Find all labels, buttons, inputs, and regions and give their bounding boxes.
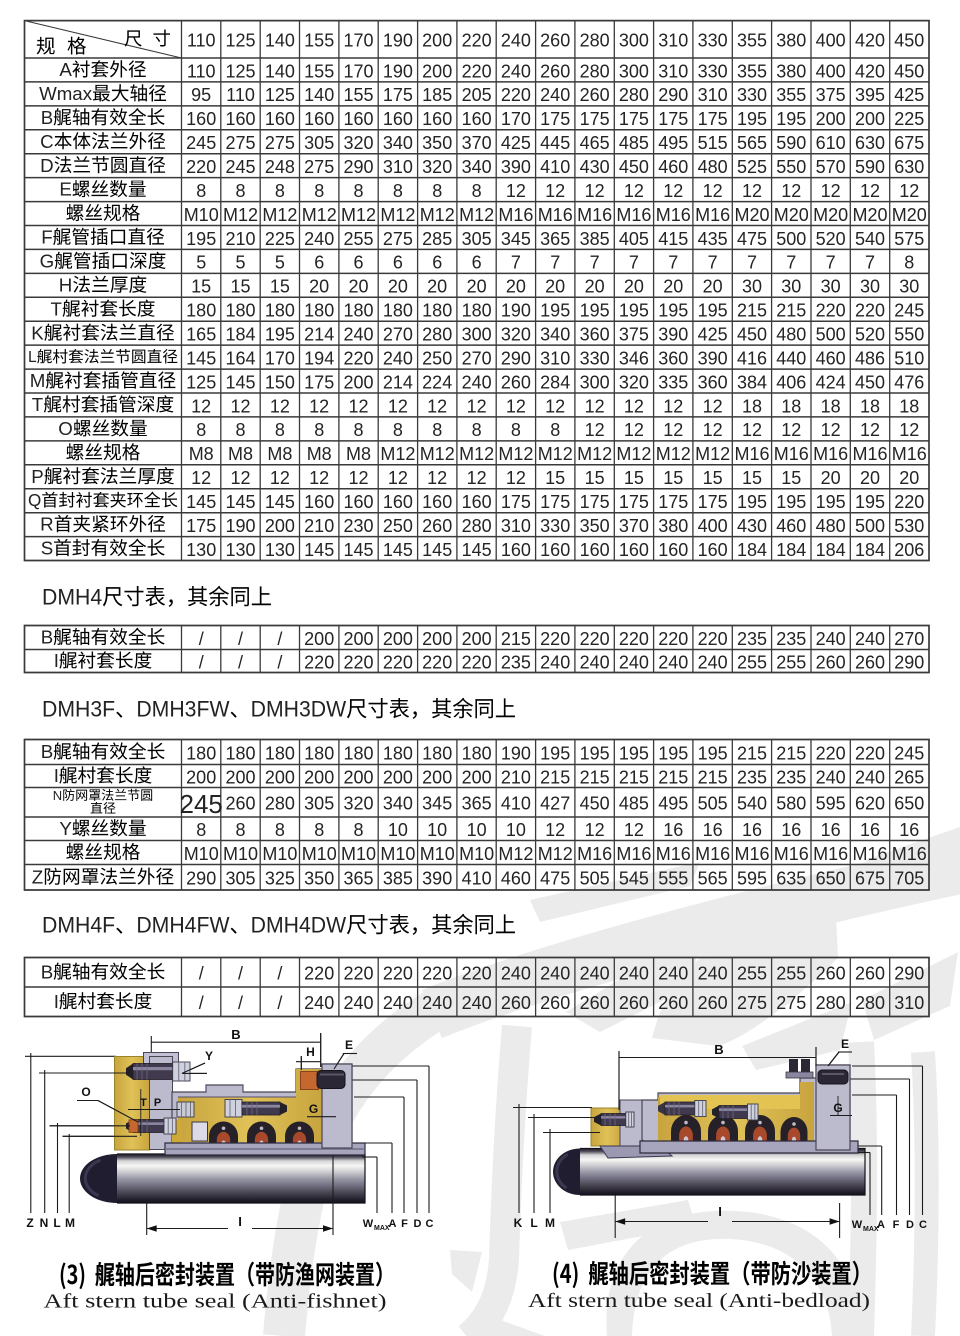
svg-text:610: 610	[816, 133, 846, 153]
svg-text:410: 410	[540, 157, 570, 177]
svg-text:310: 310	[894, 993, 924, 1013]
svg-text:215: 215	[540, 767, 570, 787]
svg-text:M12: M12	[695, 444, 730, 464]
svg-text:270: 270	[462, 348, 492, 368]
svg-text:Aft stern tube seal (Anti-bedl: Aft stern tube seal (Anti-bedload)	[528, 1290, 870, 1312]
svg-text:460: 460	[501, 869, 531, 889]
svg-text:200: 200	[265, 767, 295, 787]
svg-text:8: 8	[550, 420, 560, 440]
svg-text:206: 206	[894, 540, 924, 560]
svg-text:15: 15	[781, 468, 801, 488]
svg-text:415: 415	[658, 229, 688, 249]
svg-text:Q: Q	[28, 491, 41, 510]
svg-text:160: 160	[383, 492, 413, 512]
svg-text:M12: M12	[498, 844, 533, 864]
svg-text:310: 310	[383, 157, 413, 177]
svg-text:8: 8	[353, 420, 363, 440]
svg-text:310: 310	[501, 516, 531, 536]
svg-text:M: M	[545, 1216, 555, 1230]
svg-text:260: 260	[619, 993, 649, 1013]
svg-text:330: 330	[737, 85, 767, 105]
svg-text:505: 505	[580, 869, 610, 889]
svg-text:200: 200	[816, 109, 846, 129]
svg-text:K: K	[31, 322, 44, 343]
svg-text:12: 12	[585, 820, 605, 840]
svg-text:160: 160	[540, 540, 570, 560]
svg-text:355: 355	[737, 31, 767, 51]
svg-text:10: 10	[467, 820, 487, 840]
svg-text:630: 630	[894, 157, 924, 177]
svg-text:180: 180	[383, 301, 413, 321]
svg-text:12: 12	[624, 820, 644, 840]
svg-text:12: 12	[821, 420, 841, 440]
svg-text:225: 225	[265, 229, 295, 249]
svg-text:275: 275	[383, 229, 413, 249]
svg-text:375: 375	[619, 325, 649, 345]
svg-text:M8: M8	[307, 444, 332, 464]
svg-text:260: 260	[580, 85, 610, 105]
svg-text:350: 350	[422, 133, 452, 153]
svg-text:275: 275	[225, 133, 255, 153]
svg-text:460: 460	[776, 516, 806, 536]
svg-text:175: 175	[580, 109, 610, 129]
svg-text:P: P	[154, 1097, 161, 1109]
svg-text:140: 140	[304, 85, 334, 105]
svg-text:W: W	[363, 1218, 374, 1230]
svg-text:330: 330	[698, 61, 728, 81]
svg-text:M16: M16	[774, 444, 809, 464]
svg-text:590: 590	[855, 157, 885, 177]
svg-text:12: 12	[230, 468, 250, 488]
svg-text:248: 248	[265, 157, 295, 177]
svg-text:395: 395	[855, 85, 885, 105]
svg-text:630: 630	[855, 133, 885, 153]
svg-text:Z: Z	[32, 866, 43, 887]
svg-text:440: 440	[776, 348, 806, 368]
svg-text:G: G	[40, 251, 55, 272]
svg-text:20: 20	[348, 277, 368, 297]
svg-text:180: 180	[462, 301, 492, 321]
svg-text:145: 145	[225, 492, 255, 512]
svg-text:B: B	[41, 107, 53, 128]
svg-text:12: 12	[703, 420, 723, 440]
svg-text:M16: M16	[774, 844, 809, 864]
svg-text:M16: M16	[734, 844, 769, 864]
svg-text:7: 7	[511, 253, 521, 273]
svg-text:M16: M16	[656, 205, 691, 225]
svg-text:160: 160	[619, 540, 649, 560]
svg-text:M16: M16	[813, 444, 848, 464]
svg-text:190: 190	[383, 61, 413, 81]
svg-text:175: 175	[698, 492, 728, 512]
svg-text:335: 335	[658, 372, 688, 392]
svg-text:220: 220	[462, 652, 492, 672]
svg-text:475: 475	[540, 869, 570, 889]
svg-text:F: F	[893, 1219, 900, 1231]
svg-text:485: 485	[619, 794, 649, 814]
svg-text:340: 340	[383, 133, 413, 153]
svg-text:565: 565	[737, 133, 767, 153]
svg-text:M10: M10	[380, 844, 415, 864]
svg-text:180: 180	[225, 743, 255, 763]
svg-text:12: 12	[309, 396, 329, 416]
svg-text:365: 365	[462, 794, 492, 814]
svg-text:305: 305	[462, 229, 492, 249]
svg-text:390: 390	[658, 325, 688, 345]
svg-text:260: 260	[540, 61, 570, 81]
svg-text:350: 350	[580, 516, 610, 536]
svg-text:280: 280	[619, 85, 649, 105]
svg-text:160: 160	[501, 540, 531, 560]
svg-text:330: 330	[580, 348, 610, 368]
svg-text:8: 8	[904, 253, 914, 273]
svg-text:Y: Y	[59, 818, 72, 839]
svg-text:20: 20	[467, 277, 487, 297]
svg-text:260: 260	[501, 372, 531, 392]
svg-text:12: 12	[663, 420, 683, 440]
svg-text:280: 280	[580, 61, 610, 81]
svg-text:285: 285	[422, 229, 452, 249]
svg-text:260: 260	[580, 993, 610, 1013]
svg-text:P: P	[31, 466, 43, 487]
svg-text:E: E	[345, 1038, 353, 1052]
svg-text:8: 8	[196, 820, 206, 840]
svg-text:/: /	[199, 652, 204, 672]
svg-text:M10: M10	[459, 844, 494, 864]
svg-text:240: 240	[540, 652, 570, 672]
svg-text:595: 595	[816, 794, 846, 814]
svg-text:175: 175	[501, 492, 531, 512]
svg-text:12: 12	[388, 468, 408, 488]
svg-text:D: D	[414, 1218, 422, 1230]
svg-text:C: C	[919, 1219, 927, 1231]
svg-text:M16: M16	[852, 844, 887, 864]
svg-text:195: 195	[265, 325, 295, 345]
svg-text:180: 180	[186, 743, 216, 763]
svg-text:410: 410	[462, 869, 492, 889]
svg-text:DMH3DW: DMH3DW	[251, 696, 347, 721]
svg-text:360: 360	[698, 372, 728, 392]
svg-text:DMH3F: DMH3F	[42, 696, 115, 721]
svg-text:406: 406	[776, 372, 806, 392]
svg-text:12: 12	[860, 420, 880, 440]
svg-text:200: 200	[422, 61, 452, 81]
svg-text:125: 125	[265, 85, 295, 105]
svg-text:8: 8	[511, 420, 521, 440]
svg-text:20: 20	[388, 277, 408, 297]
svg-text:235: 235	[776, 629, 806, 649]
svg-text:12: 12	[348, 396, 368, 416]
svg-text:20: 20	[427, 277, 447, 297]
svg-text:175: 175	[186, 516, 216, 536]
svg-text:M: M	[65, 1216, 75, 1230]
svg-text:485: 485	[619, 133, 649, 153]
svg-text:M12: M12	[380, 444, 415, 464]
svg-text:M12: M12	[459, 444, 494, 464]
svg-text:12: 12	[624, 396, 644, 416]
svg-text:460: 460	[816, 348, 846, 368]
svg-text:110: 110	[187, 61, 216, 81]
svg-text:8: 8	[353, 181, 363, 201]
svg-text:320: 320	[501, 325, 531, 345]
svg-text:245: 245	[894, 743, 924, 763]
svg-text:12: 12	[624, 420, 644, 440]
svg-text:450: 450	[737, 325, 767, 345]
svg-text:5: 5	[275, 253, 285, 273]
svg-text:240: 240	[501, 61, 531, 81]
svg-text:195: 195	[776, 492, 806, 512]
svg-text:580: 580	[776, 794, 806, 814]
svg-text:8: 8	[275, 820, 285, 840]
svg-text:Wmax: Wmax	[39, 83, 93, 104]
svg-text:555: 555	[658, 869, 688, 889]
svg-text:240: 240	[383, 993, 413, 1013]
svg-text:30: 30	[742, 277, 762, 297]
svg-text:F: F	[41, 227, 52, 248]
svg-text:480: 480	[698, 157, 728, 177]
svg-text:M16: M16	[892, 444, 927, 464]
svg-text:330: 330	[698, 31, 728, 51]
svg-text:170: 170	[343, 61, 373, 81]
svg-text:6: 6	[472, 253, 482, 273]
svg-text:175: 175	[383, 85, 413, 105]
svg-text:525: 525	[737, 157, 767, 177]
svg-text:160: 160	[343, 109, 373, 129]
svg-text:W: W	[852, 1219, 863, 1231]
svg-text:495: 495	[658, 133, 688, 153]
svg-text:430: 430	[580, 157, 610, 177]
svg-text:L: L	[28, 349, 37, 366]
svg-text:7: 7	[708, 253, 718, 273]
svg-text:270: 270	[383, 325, 413, 345]
svg-text:/: /	[277, 993, 282, 1013]
svg-text:215: 215	[776, 743, 806, 763]
svg-text:A: A	[59, 59, 72, 80]
svg-text:12: 12	[230, 396, 250, 416]
svg-text:215: 215	[580, 767, 610, 787]
svg-text:305: 305	[304, 133, 334, 153]
svg-text:M10: M10	[184, 844, 219, 864]
svg-text:M12: M12	[420, 444, 455, 464]
svg-text:180: 180	[186, 301, 216, 321]
svg-text:155: 155	[304, 61, 334, 81]
svg-text:215: 215	[776, 301, 806, 321]
svg-text:210: 210	[304, 516, 334, 536]
svg-text:F: F	[401, 1218, 408, 1230]
svg-text:10: 10	[388, 820, 408, 840]
svg-text:5: 5	[235, 253, 245, 273]
svg-text:130: 130	[265, 540, 295, 560]
svg-text:N: N	[40, 1216, 49, 1230]
svg-text:255: 255	[343, 229, 373, 249]
svg-text:195: 195	[186, 229, 216, 249]
svg-text:175: 175	[619, 492, 649, 512]
svg-text:7: 7	[590, 253, 600, 273]
svg-text:6: 6	[314, 253, 324, 273]
svg-text:240: 240	[816, 629, 846, 649]
svg-text:260: 260	[816, 964, 846, 984]
svg-text:C: C	[426, 1218, 434, 1230]
svg-text:200: 200	[225, 767, 255, 787]
svg-text:240: 240	[343, 993, 373, 1013]
svg-text:12: 12	[309, 468, 329, 488]
svg-text:110: 110	[187, 31, 216, 51]
svg-text:550: 550	[894, 325, 924, 345]
svg-text:195: 195	[698, 301, 728, 321]
svg-text:12: 12	[899, 181, 919, 201]
svg-text:M16: M16	[577, 205, 612, 225]
svg-text:220: 220	[540, 629, 570, 649]
svg-text:200: 200	[462, 629, 492, 649]
svg-text:8: 8	[196, 181, 206, 201]
svg-text:275: 275	[776, 993, 806, 1013]
svg-text:200: 200	[304, 629, 334, 649]
svg-text:M16: M16	[695, 844, 730, 864]
svg-text:M12: M12	[302, 205, 337, 225]
svg-text:280: 280	[462, 516, 492, 536]
svg-text:12: 12	[348, 468, 368, 488]
svg-text:12: 12	[545, 181, 565, 201]
svg-text:M10: M10	[302, 844, 337, 864]
svg-text:30: 30	[860, 277, 880, 297]
svg-text:125: 125	[225, 61, 255, 81]
svg-text:240: 240	[619, 964, 649, 984]
svg-text:435: 435	[698, 229, 728, 249]
svg-text:30: 30	[821, 277, 841, 297]
svg-text:E: E	[59, 179, 71, 200]
svg-text:12: 12	[545, 396, 565, 416]
svg-text:180: 180	[462, 743, 492, 763]
svg-text:430: 430	[737, 516, 767, 536]
svg-text:200: 200	[343, 629, 373, 649]
svg-text:245: 245	[225, 157, 255, 177]
svg-text:5: 5	[196, 253, 206, 273]
svg-text:12: 12	[781, 420, 801, 440]
svg-text:145: 145	[265, 492, 295, 512]
svg-text:220: 220	[698, 629, 728, 649]
svg-text:260: 260	[540, 31, 570, 51]
svg-text:270: 270	[894, 629, 924, 649]
svg-text:A: A	[389, 1218, 397, 1230]
svg-text:305: 305	[304, 794, 334, 814]
svg-text:16: 16	[821, 820, 841, 840]
svg-text:M16: M16	[577, 844, 612, 864]
svg-text:235: 235	[737, 629, 767, 649]
svg-text:190: 190	[501, 743, 531, 763]
svg-text:7: 7	[747, 253, 757, 273]
svg-text:195: 195	[855, 492, 885, 512]
svg-text:180: 180	[343, 301, 373, 321]
svg-text:200: 200	[855, 109, 885, 129]
svg-text:12: 12	[663, 181, 683, 201]
svg-text:240: 240	[501, 31, 531, 51]
svg-text:15: 15	[270, 277, 290, 297]
svg-text:240: 240	[462, 372, 492, 392]
svg-text:220: 220	[658, 629, 688, 649]
svg-text:500: 500	[776, 229, 806, 249]
svg-text:495: 495	[658, 794, 688, 814]
svg-text:255: 255	[776, 964, 806, 984]
svg-text:520: 520	[855, 325, 885, 345]
svg-text:280: 280	[265, 794, 295, 814]
svg-text:E: E	[841, 1037, 849, 1051]
svg-text:15: 15	[230, 277, 250, 297]
svg-text:160: 160	[698, 540, 728, 560]
svg-text:140: 140	[265, 31, 295, 51]
svg-text:235: 235	[776, 767, 806, 787]
svg-text:18: 18	[860, 396, 880, 416]
svg-text:M20: M20	[892, 205, 927, 225]
svg-text:T: T	[51, 298, 62, 319]
svg-text:20: 20	[663, 277, 683, 297]
svg-text:160: 160	[462, 109, 492, 129]
svg-text:650: 650	[894, 794, 924, 814]
svg-text:340: 340	[462, 157, 492, 177]
svg-text:R: R	[40, 514, 54, 535]
svg-text:20: 20	[545, 277, 565, 297]
svg-text:M8: M8	[189, 444, 214, 464]
svg-text:10: 10	[506, 820, 526, 840]
svg-text:290: 290	[186, 869, 216, 889]
svg-text:G: G	[309, 1102, 318, 1116]
svg-text:K: K	[514, 1216, 523, 1230]
svg-text:12: 12	[703, 396, 723, 416]
svg-text:145: 145	[422, 540, 452, 560]
svg-text:160: 160	[304, 109, 334, 129]
svg-text:476: 476	[894, 372, 924, 392]
svg-text:515: 515	[698, 133, 728, 153]
svg-text:280: 280	[580, 31, 610, 51]
svg-text:12: 12	[742, 420, 762, 440]
svg-text:7: 7	[668, 253, 678, 273]
svg-text:8: 8	[393, 181, 403, 201]
svg-text:220: 220	[816, 301, 846, 321]
svg-text:L: L	[53, 1216, 60, 1230]
svg-text:340: 340	[540, 325, 570, 345]
svg-text:184: 184	[776, 540, 806, 560]
svg-text:B: B	[41, 741, 53, 762]
svg-text:M16: M16	[498, 205, 533, 225]
svg-text:290: 290	[343, 157, 373, 177]
svg-text:550: 550	[776, 157, 806, 177]
svg-text:175: 175	[658, 492, 688, 512]
svg-text:C: C	[40, 131, 54, 152]
svg-text:375: 375	[816, 85, 846, 105]
svg-text:160: 160	[422, 109, 452, 129]
svg-text:220: 220	[422, 652, 452, 672]
svg-text:175: 175	[580, 492, 610, 512]
svg-text:DMH3FW: DMH3FW	[136, 696, 230, 721]
svg-text:450: 450	[894, 31, 924, 51]
svg-text:260: 260	[698, 993, 728, 1013]
svg-text:8: 8	[235, 820, 245, 840]
svg-text:DMH4F: DMH4F	[42, 912, 115, 937]
svg-text:220: 220	[501, 85, 531, 105]
svg-text:I: I	[718, 1204, 722, 1219]
svg-text:145: 145	[225, 372, 255, 392]
svg-text:8: 8	[314, 420, 324, 440]
svg-text:M16: M16	[695, 205, 730, 225]
svg-text:220: 220	[462, 964, 492, 984]
svg-text:520: 520	[816, 229, 846, 249]
svg-text:185: 185	[422, 85, 452, 105]
svg-text:175: 175	[540, 492, 570, 512]
svg-text:M12: M12	[498, 444, 533, 464]
svg-text:M8: M8	[267, 444, 292, 464]
svg-text:340: 340	[383, 794, 413, 814]
svg-text:240: 240	[304, 229, 334, 249]
svg-text:245: 245	[186, 133, 216, 153]
